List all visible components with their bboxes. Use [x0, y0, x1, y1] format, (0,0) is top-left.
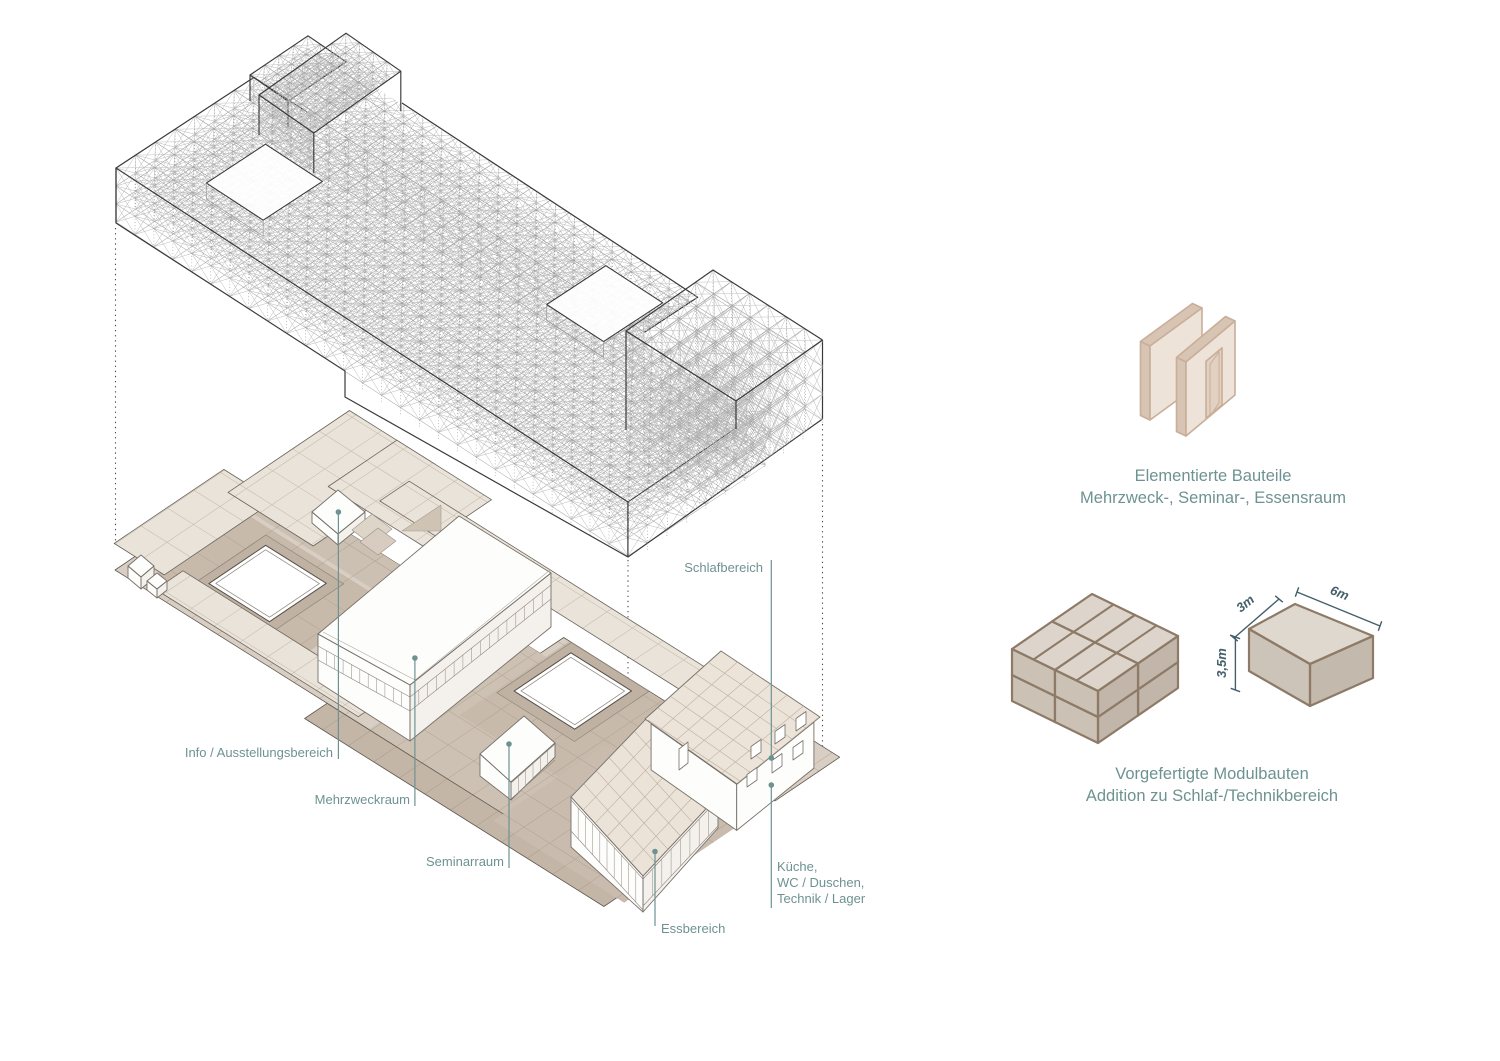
- svg-text:Addition zu Schlaf-/Technikber: Addition zu Schlaf-/Technikbereich: [1086, 787, 1338, 805]
- svg-text:Vorgefertigte Modulbauten: Vorgefertigte Modulbauten: [1115, 765, 1309, 783]
- svg-text:Essbereich: Essbereich: [661, 921, 725, 936]
- svg-text:Mehrzweckraum: Mehrzweckraum: [315, 792, 410, 807]
- svg-text:WC / Duschen,: WC / Duschen,: [777, 875, 864, 890]
- svg-text:Seminarraum: Seminarraum: [426, 854, 504, 869]
- svg-text:Mehrzweck-, Seminar-, Essensra: Mehrzweck-, Seminar-, Essensraum: [1080, 489, 1346, 507]
- svg-text:Schlafbereich: Schlafbereich: [684, 560, 763, 575]
- svg-text:Technik / Lager: Technik / Lager: [777, 891, 866, 906]
- svg-text:Küche,: Küche,: [777, 859, 817, 874]
- svg-text:3,5m: 3,5m: [1214, 648, 1229, 678]
- svg-text:Elementierte Bauteile: Elementierte Bauteile: [1135, 467, 1292, 485]
- svg-text:Info / Ausstellungsbereich: Info / Ausstellungsbereich: [185, 745, 333, 760]
